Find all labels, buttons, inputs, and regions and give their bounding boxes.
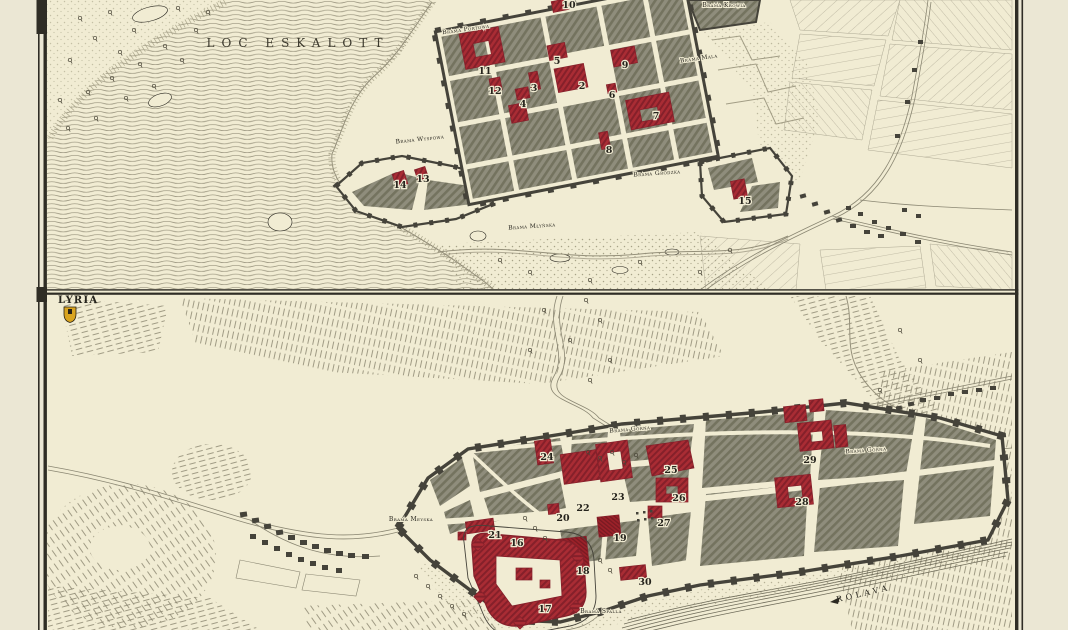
building-number: 23 [611, 492, 624, 503]
building-number: 19 [613, 533, 627, 544]
gate-label: Brama Meyska [389, 516, 433, 523]
building-number: 14 [393, 180, 407, 191]
building-number: 27 [657, 518, 670, 529]
building-number: 30 [638, 577, 652, 588]
building-number: 7 [653, 111, 660, 122]
building-number: 17 [538, 604, 551, 615]
building-number: 10 [562, 0, 576, 11]
building-number: 28 [795, 497, 809, 508]
building-number: 22 [576, 503, 589, 514]
water-name-label: LOC ESKALOTT [207, 36, 390, 50]
gate-label: Brama Krowia [702, 2, 745, 9]
border-segment [37, 287, 48, 302]
building-number: 13 [416, 174, 429, 185]
panel-divider [44, 289, 1019, 290]
gate-label: Brama Spalla [580, 608, 622, 615]
border-segment [37, 0, 48, 34]
building-number: 24 [540, 452, 554, 463]
building-number: 5 [554, 56, 561, 67]
building-number: 8 [606, 145, 613, 156]
building-number: 6 [609, 90, 616, 101]
building-number: 20 [556, 513, 570, 524]
building-number: 18 [576, 566, 590, 577]
building-number: 26 [672, 493, 686, 504]
building-number: 12 [488, 86, 501, 97]
building-number: 16 [510, 538, 524, 549]
building-number: 2 [579, 81, 586, 92]
lyria-shield-charge [68, 309, 72, 314]
building-number: 29 [803, 455, 817, 466]
building-number: 15 [738, 196, 751, 207]
building-number: 4 [520, 99, 527, 110]
region-name-label: LYRIA [58, 295, 98, 306]
antique-map: Brama PortowaBrama KrowiaBrama MalaBrama… [0, 0, 1068, 630]
lake-island [470, 231, 486, 241]
building-number: 3 [531, 83, 538, 94]
building-number: 25 [664, 465, 677, 476]
building-number: 21 [488, 530, 501, 541]
east-outwork [700, 148, 792, 222]
building-number: 9 [622, 60, 629, 71]
lake-island [268, 213, 292, 231]
building-number: 11 [478, 66, 491, 77]
panel-divider [44, 293, 1019, 295]
